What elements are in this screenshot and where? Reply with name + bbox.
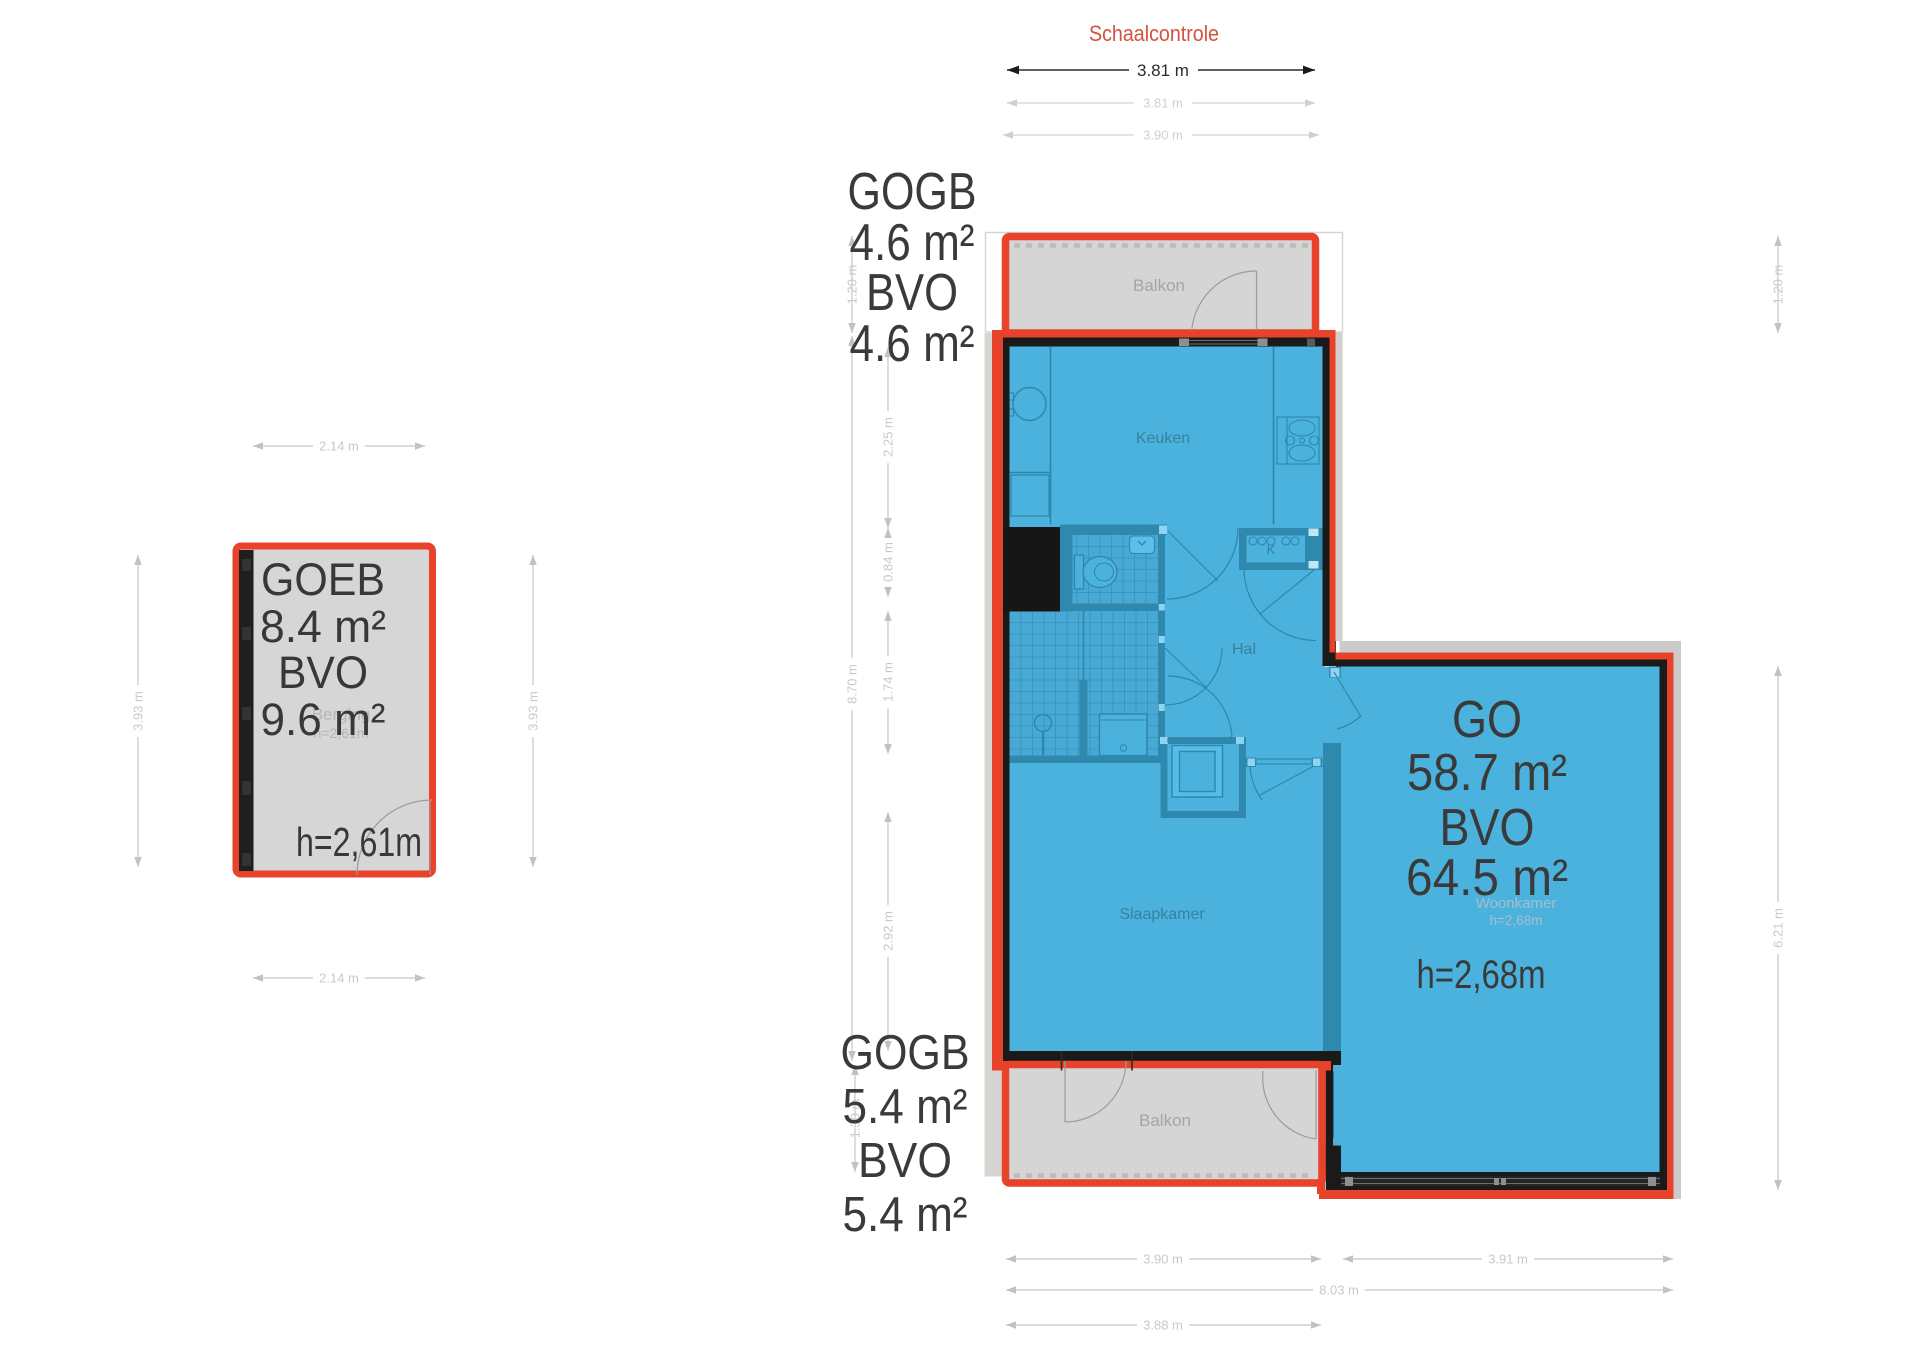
svg-text:64.5 m²: 64.5 m² (1406, 849, 1568, 907)
svg-text:2.14 m: 2.14 m (319, 971, 359, 986)
svg-text:2.14 m: 2.14 m (319, 439, 359, 454)
svg-text:3.81 m: 3.81 m (1143, 96, 1183, 111)
svg-text:GOGB: GOGB (848, 163, 977, 221)
svg-text:8.03 m: 8.03 m (1319, 1283, 1359, 1298)
svg-text:6.21 m: 6.21 m (1771, 908, 1786, 948)
svg-text:GOEB: GOEB (261, 554, 385, 605)
svg-text:h=2,61m: h=2,61m (296, 819, 422, 865)
svg-text:GO: GO (1452, 691, 1522, 749)
svg-text:3.90 m: 3.90 m (1143, 1252, 1183, 1267)
svg-text:5.4 m²: 5.4 m² (843, 1188, 968, 1242)
svg-text:Schaalcontrole: Schaalcontrole (1089, 21, 1219, 46)
svg-text:8.4 m²: 8.4 m² (260, 601, 386, 652)
svg-text:2.92 m: 2.92 m (881, 911, 896, 951)
svg-text:3.93 m: 3.93 m (131, 691, 146, 731)
svg-text:58.7 m²: 58.7 m² (1407, 744, 1567, 802)
svg-text:h=2,68m: h=2,68m (1417, 953, 1546, 997)
svg-text:Balkon: Balkon (1133, 276, 1185, 295)
svg-text:3.81 m: 3.81 m (1137, 61, 1189, 80)
svg-text:3.91 m: 3.91 m (1488, 1252, 1528, 1267)
svg-text:3.88 m: 3.88 m (1143, 1318, 1183, 1333)
svg-text:Slaapkamer: Slaapkamer (1119, 906, 1205, 923)
svg-text:BVO: BVO (278, 647, 368, 698)
svg-text:2.25 m: 2.25 m (881, 417, 896, 457)
svg-text:h=2,68m: h=2,68m (1490, 913, 1543, 928)
svg-text:3.93 m: 3.93 m (526, 691, 541, 731)
svg-text:1.74 m: 1.74 m (881, 662, 896, 702)
svg-text:3.90 m: 3.90 m (1143, 128, 1183, 143)
svg-text:BVO: BVO (858, 1134, 952, 1188)
svg-text:Keuken: Keuken (1136, 430, 1190, 447)
svg-text:0.84 m: 0.84 m (881, 542, 896, 582)
svg-text:Hal: Hal (1232, 641, 1256, 658)
svg-text:9.6 m²: 9.6 m² (261, 694, 386, 745)
svg-text:8.70 m: 8.70 m (845, 664, 860, 704)
svg-text:Balkon: Balkon (1139, 1111, 1191, 1130)
svg-text:5.4 m²: 5.4 m² (843, 1080, 968, 1134)
svg-text:1.20 m: 1.20 m (1771, 265, 1786, 305)
svg-text:4.6 m²: 4.6 m² (850, 315, 975, 373)
svg-text:GOGB: GOGB (841, 1026, 970, 1080)
svg-text:BVO: BVO (866, 264, 958, 322)
